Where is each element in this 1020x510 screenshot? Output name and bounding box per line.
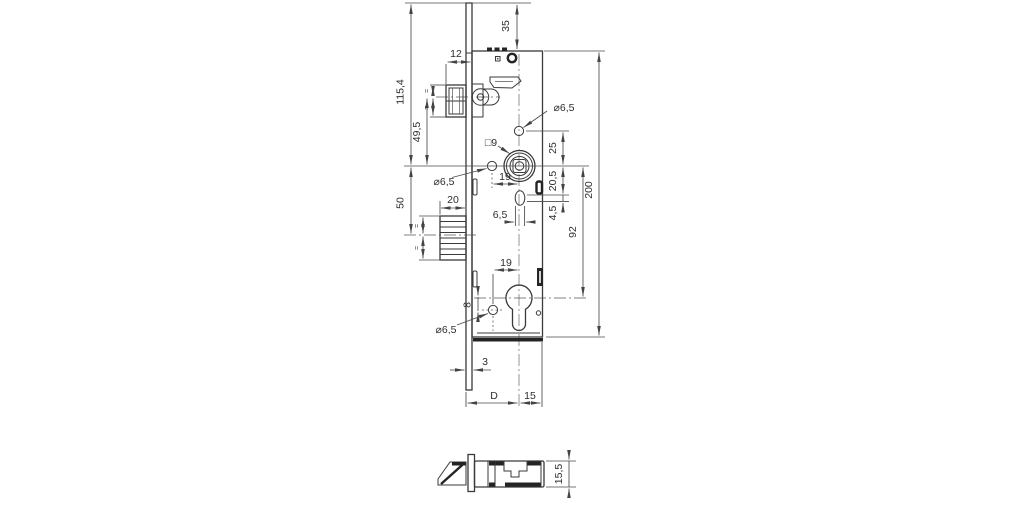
- dim-label-8: 8: [462, 302, 474, 308]
- dim-label-50: 50: [395, 197, 407, 209]
- top-mark: [502, 48, 507, 52]
- main-view: 35 12 115,4 49,5 50 = = = =: [395, 3, 606, 407]
- dim-label-15: 15: [524, 390, 536, 402]
- section-latch: [438, 462, 466, 485]
- dim-label-19-top: 19: [499, 171, 511, 183]
- dim-label-115-4: 115,4: [395, 79, 407, 105]
- section-faceplate: [468, 455, 475, 492]
- oval-hole: [515, 191, 525, 205]
- deadbolt: [440, 216, 466, 260]
- edge-slot-upper: [537, 182, 543, 194]
- square-label: □9: [485, 137, 497, 149]
- dim-label-4-5: 4,5: [547, 206, 559, 221]
- spring-lever: [490, 77, 521, 88]
- equal-mark: =: [414, 224, 421, 228]
- dim-label-19-bottom: 19: [500, 257, 512, 269]
- dim-label-6-5: 6,5: [493, 209, 508, 221]
- dim-label-200: 200: [583, 181, 595, 199]
- dia-label-left: ⌀6,5: [434, 176, 455, 188]
- technical-drawing: 35 12 115,4 49,5 50 = = = =: [0, 0, 1020, 510]
- faceplate-tab-upper: [473, 179, 477, 195]
- dim-label-3: 3: [482, 356, 488, 368]
- faceplate-tab-lower: [473, 271, 477, 287]
- equal-mark: =: [424, 106, 431, 110]
- dim-label-49-5: 49,5: [411, 122, 423, 143]
- case-bottom-edge: [473, 338, 543, 342]
- section-case-body: [475, 461, 545, 487]
- dimension-15-5: 15,5: [546, 451, 576, 498]
- dim-label-25: 25: [547, 142, 559, 154]
- bottom-section-view: 15,5: [438, 451, 576, 498]
- drawing-canvas: 35 12 115,4 49,5 50 = = = =: [0, 0, 1020, 510]
- latch-bolt: [446, 84, 499, 117]
- dia-label-bottom: ⌀6,5: [436, 324, 457, 336]
- top-mark: [495, 48, 500, 52]
- dim-label-35: 35: [500, 20, 512, 32]
- dim-label-20: 20: [447, 194, 459, 206]
- equal-mark: =: [424, 89, 431, 93]
- dim-label-20-5: 20,5: [547, 171, 559, 192]
- section-notch: [504, 462, 527, 478]
- dimensions: 35 12 115,4 49,5 50 = = = =: [395, 3, 606, 407]
- edge-pin: [536, 311, 540, 315]
- top-bushing: [508, 54, 516, 62]
- dia-label-top: ⌀6,5: [554, 102, 575, 114]
- top-mark: [487, 48, 492, 52]
- dim-label-92: 92: [567, 226, 579, 238]
- equal-mark: =: [414, 246, 421, 250]
- dim-label-15-5: 15,5: [553, 464, 565, 485]
- dim-label-D: D: [490, 390, 498, 402]
- dim-label-12: 12: [450, 48, 462, 60]
